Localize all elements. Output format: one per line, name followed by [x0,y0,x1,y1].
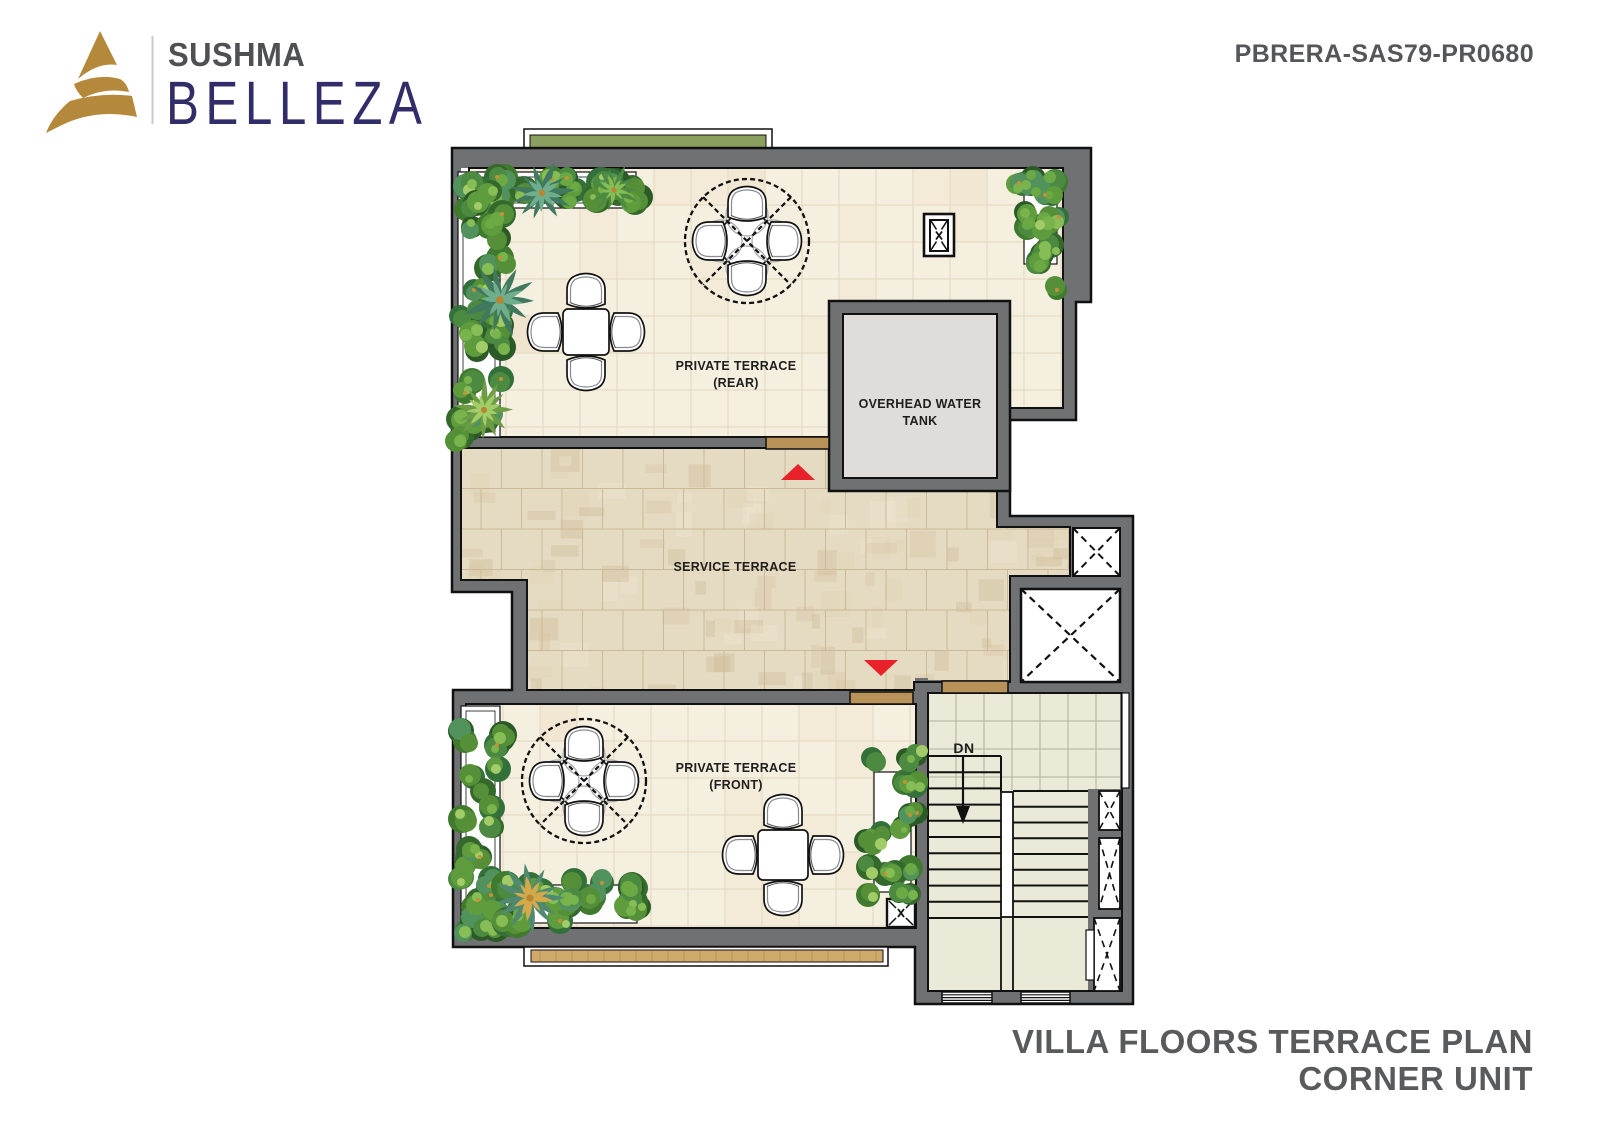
svg-text:SUSHMA: SUSHMA [168,36,305,73]
svg-text:(REAR): (REAR) [713,376,759,390]
svg-text:(FRONT): (FRONT) [709,778,762,792]
svg-text:BELLEZA: BELLEZA [166,69,428,137]
svg-text:OVERHEAD WATER: OVERHEAD WATER [859,397,982,411]
svg-text:SERVICE TERRACE: SERVICE TERRACE [673,560,796,574]
svg-text:PRIVATE TERRACE: PRIVATE TERRACE [676,359,797,373]
svg-text:TANK: TANK [903,414,938,428]
svg-text:VILLA FLOORS TERRACE PLAN: VILLA FLOORS TERRACE PLAN [1012,1023,1533,1060]
svg-text:DN: DN [953,740,974,756]
svg-text:PBRERA-SAS79-PR0680: PBRERA-SAS79-PR0680 [1235,40,1534,68]
svg-text:CORNER UNIT: CORNER UNIT [1298,1060,1533,1097]
svg-text:PRIVATE TERRACE: PRIVATE TERRACE [676,761,797,775]
